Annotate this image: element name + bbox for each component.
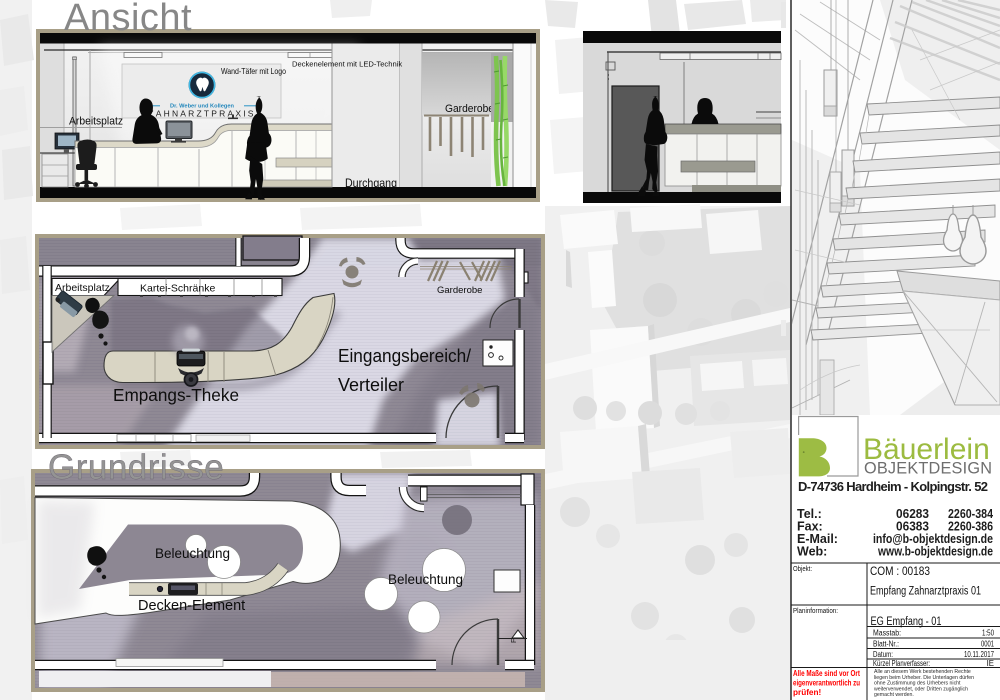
svg-text:EG Empfang - 01: EG Empfang - 01 — [871, 616, 942, 628]
svg-text:Decken-Element: Decken-Element — [138, 598, 245, 614]
svg-text:Blatt-Nr.:: Blatt-Nr.: — [873, 640, 899, 649]
svg-text:Web:: Web: — [797, 545, 827, 559]
svg-text:Empangs-Theke: Empangs-Theke — [113, 385, 239, 405]
svg-text:D-74736 Hardheim - Kolpingst: D-74736 Hardheim - Kolpingstr. 52 — [798, 479, 988, 494]
svg-text:1:50: 1:50 — [982, 629, 995, 638]
svg-text:Planinformation:: Planinformation: — [793, 608, 838, 615]
svg-text:Kürzel Planverfasser:: Kürzel Planverfasser: — [873, 659, 930, 668]
svg-text:gemacht werden.: gemacht werden. — [874, 692, 914, 698]
svg-text:Empfang Zahnarztpraxis 01: Empfang Zahnarztpraxis 01 — [870, 586, 981, 598]
svg-text:Objekt:: Objekt: — [793, 566, 812, 573]
svg-text:Masstab:: Masstab: — [873, 629, 901, 638]
svg-text:eigenverantwortlich zu: eigenverantwortlich zu — [793, 679, 860, 688]
svg-text:IE: IE — [987, 659, 994, 668]
svg-text:Arbeitsplatz: Arbeitsplatz — [69, 116, 123, 128]
svg-text:Verteiler: Verteiler — [338, 375, 404, 395]
svg-text:prüfen!: prüfen! — [793, 688, 821, 697]
svg-text:Datum:: Datum: — [873, 650, 893, 659]
svg-text:Beleuchtung: Beleuchtung — [155, 546, 230, 561]
svg-text:Beleuchtung: Beleuchtung — [388, 572, 463, 587]
svg-text:Wand-Täfer mit Logo: Wand-Täfer mit Logo — [221, 67, 286, 76]
svg-text:COM : 00183: COM : 00183 — [870, 566, 930, 578]
svg-text:Kartei-Schränke: Kartei-Schränke — [140, 283, 215, 295]
svg-text:OBJEKTDESIGN: OBJEKTDESIGN — [864, 460, 992, 478]
svg-text:Alle Maße sind vor Ort: Alle Maße sind vor Ort — [793, 669, 860, 678]
svg-text:ZAHNARZTPRAXIS: ZAHNARZTPRAXIS — [148, 109, 255, 119]
svg-text:10.11.2017: 10.11.2017 — [964, 650, 994, 659]
svg-text:Eingangsbereich/: Eingangsbereich/ — [338, 346, 471, 366]
svg-text:0001: 0001 — [981, 640, 994, 649]
svg-text:www.b-objektdesign.de: www.b-objektdesign.de — [877, 545, 993, 559]
svg-text:Grundrisse: Grundrisse — [48, 448, 224, 487]
svg-text:Ansicht: Ansicht — [64, 0, 192, 39]
svg-text:Garderobe: Garderobe — [437, 285, 482, 296]
svg-text:F: F — [509, 638, 518, 643]
svg-text:Durchgang: Durchgang — [345, 176, 397, 190]
svg-text:Deckenelement mit LED-Technik: Deckenelement mit LED-Technik — [292, 60, 402, 69]
svg-text:Garderobe: Garderobe — [445, 103, 494, 115]
